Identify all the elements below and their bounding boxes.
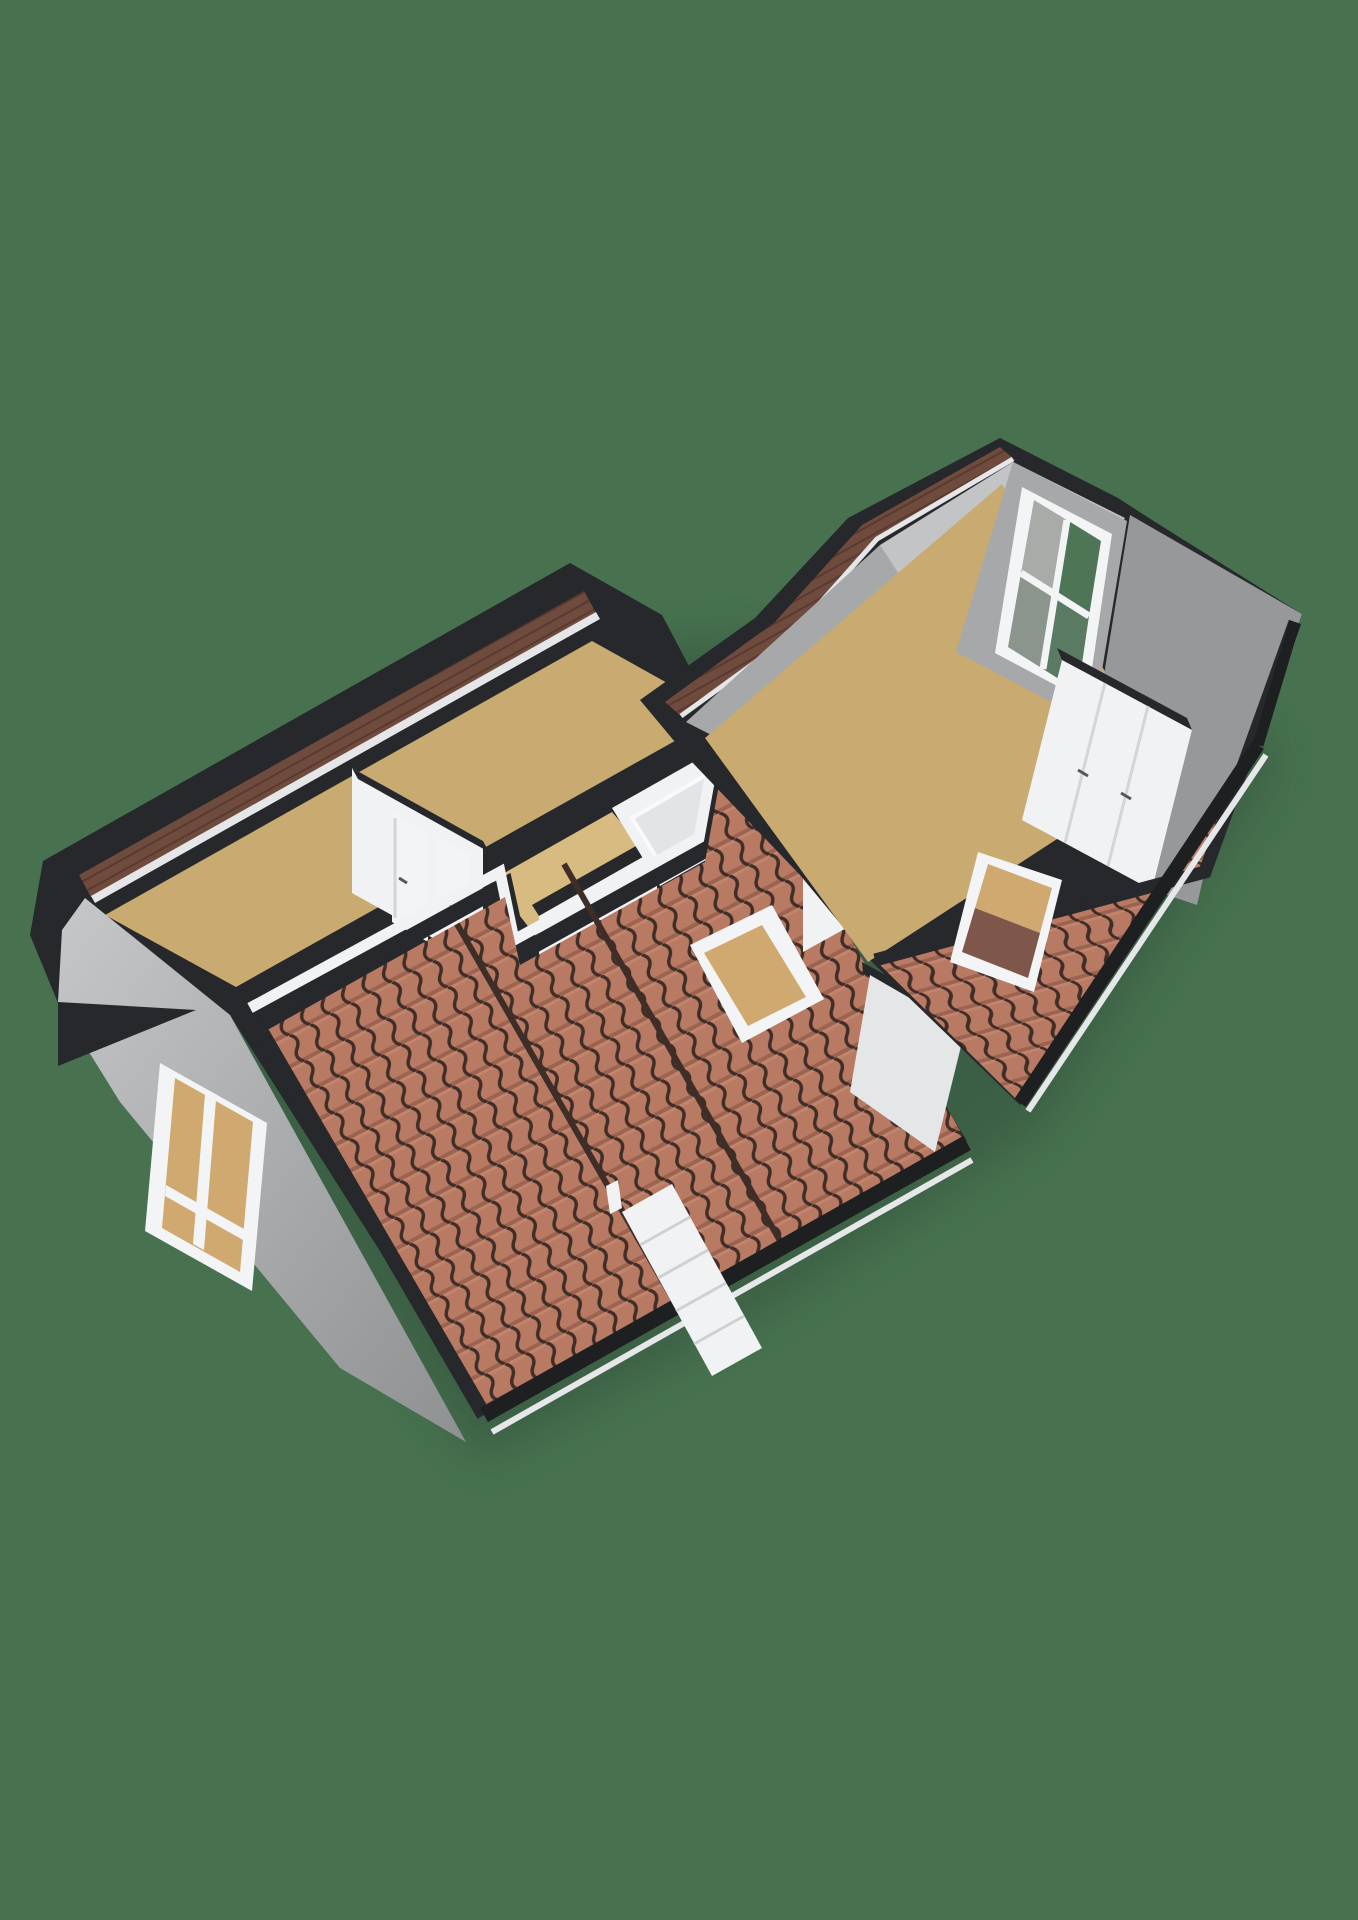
floorplan-3d-view[interactable] — [0, 0, 1358, 1920]
floorplan-stage — [0, 0, 1358, 1920]
